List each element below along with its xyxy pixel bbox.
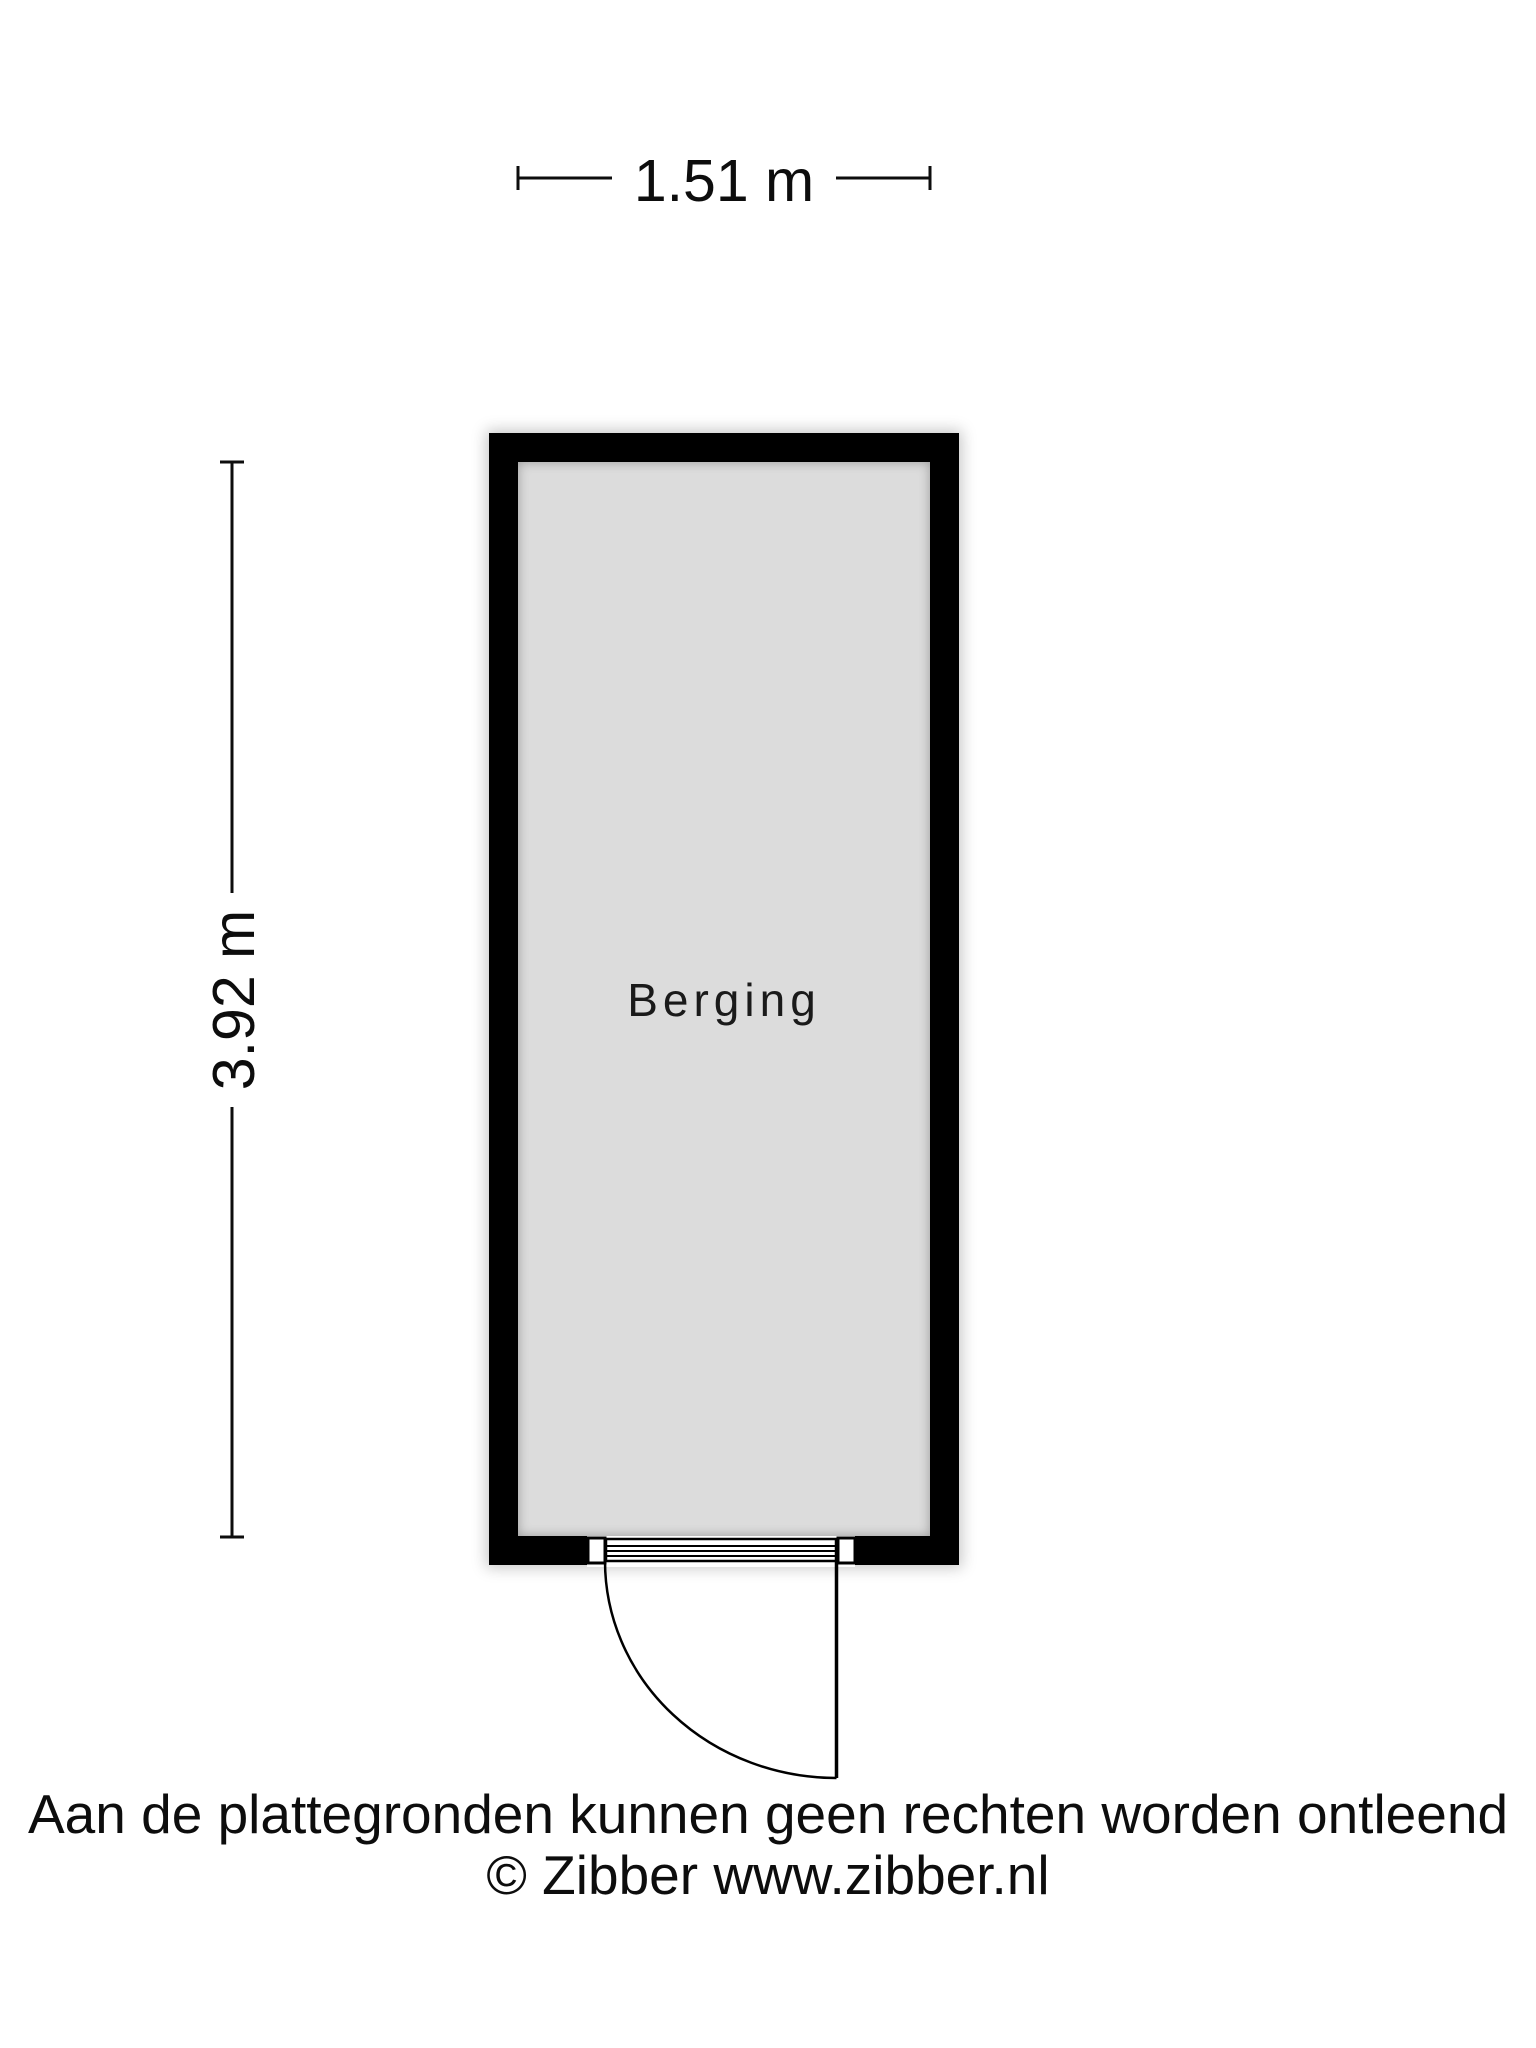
footer-copyright: © Zibber www.zibber.nl bbox=[0, 1845, 1536, 1906]
footer: Aan de plattegronden kunnen geen rechten… bbox=[0, 1784, 1536, 1906]
door-swing-arc bbox=[605, 1561, 837, 1778]
footer-disclaimer: Aan de plattegronden kunnen geen rechten… bbox=[0, 1784, 1536, 1845]
door-symbol bbox=[588, 1538, 855, 1778]
height-dimension-label: 3.92 m bbox=[200, 904, 268, 1096]
door-opening bbox=[587, 1536, 855, 1567]
width-dimension-label: 1.51 m bbox=[628, 147, 820, 215]
floorplan-page: 1.51 m 3.92 m Berging Aan de plattegrond… bbox=[0, 0, 1536, 2048]
room-label-berging: Berging bbox=[627, 973, 821, 1027]
